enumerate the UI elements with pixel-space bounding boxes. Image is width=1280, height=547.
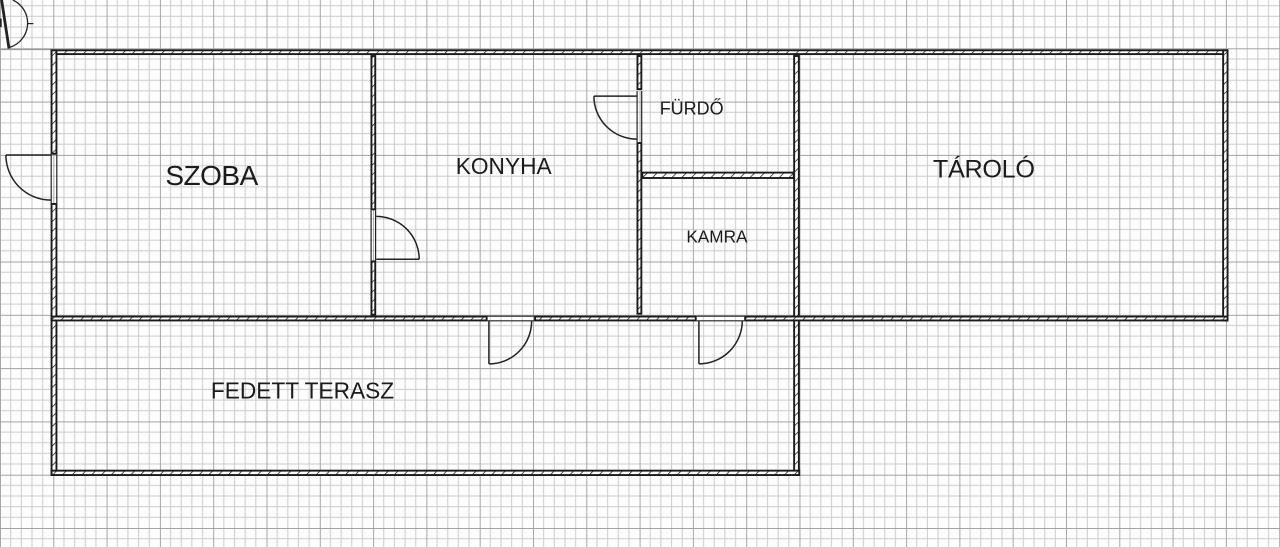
svg-text:KAMRA: KAMRA bbox=[686, 227, 748, 247]
svg-text:KONYHA: KONYHA bbox=[456, 153, 553, 179]
svg-text:FEDETT TERASZ: FEDETT TERASZ bbox=[211, 378, 394, 404]
svg-text:FÜRDŐ: FÜRDŐ bbox=[660, 98, 724, 119]
svg-text:SZOBA: SZOBA bbox=[165, 160, 258, 191]
svg-text:TÁROLÓ: TÁROLÓ bbox=[933, 155, 1035, 184]
